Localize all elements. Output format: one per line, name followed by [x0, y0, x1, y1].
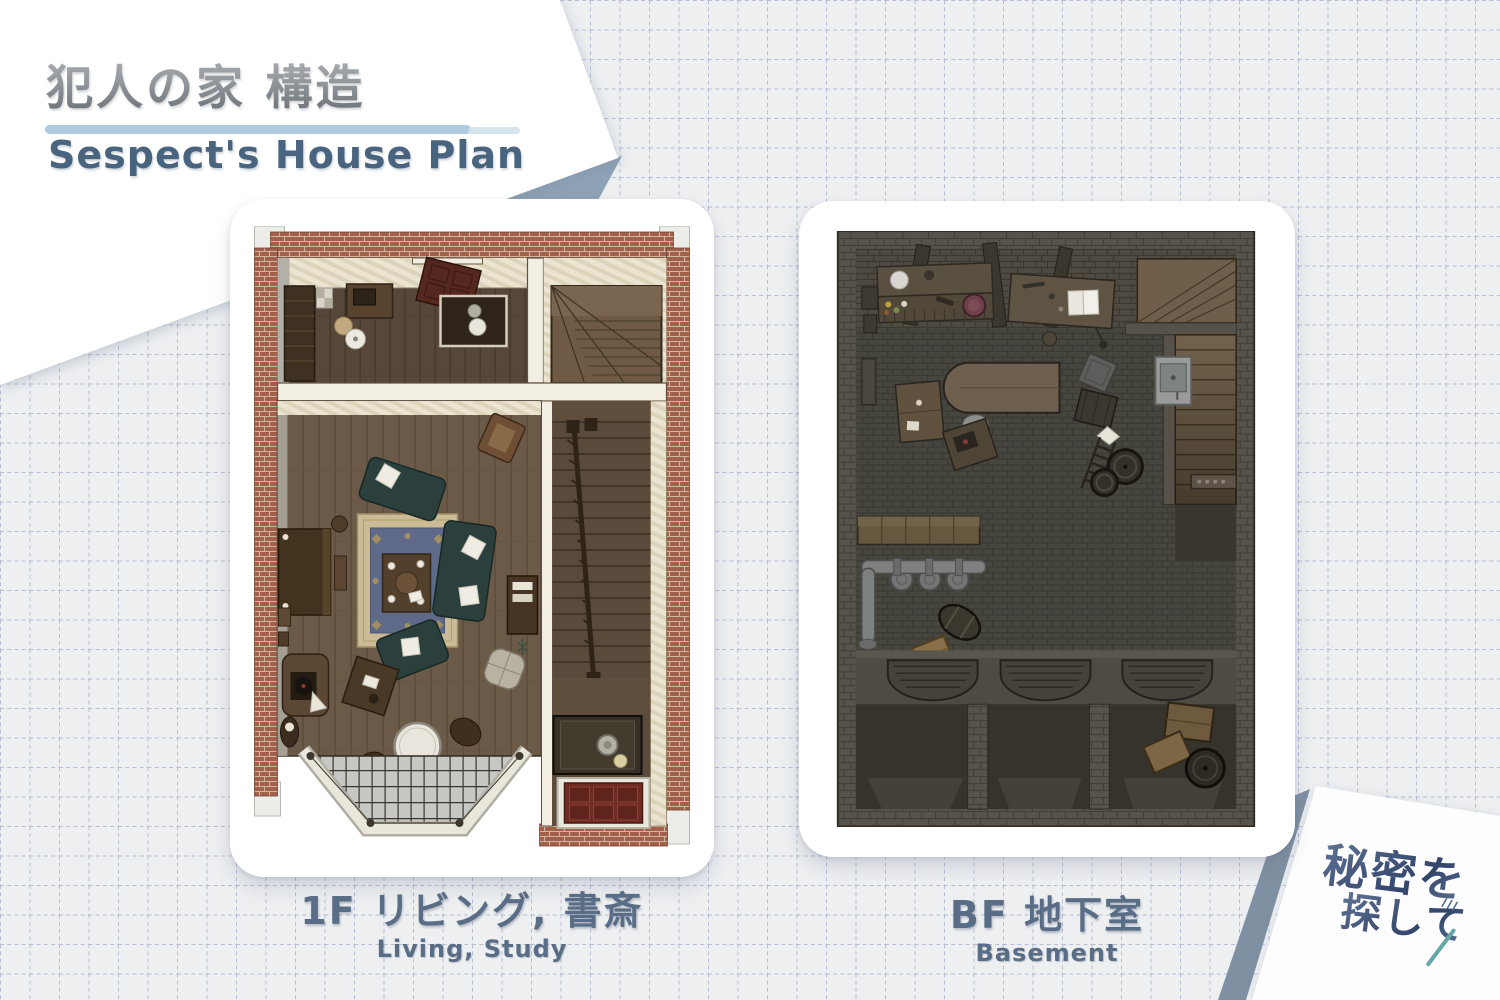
bookshelf — [285, 286, 315, 381]
gramophone-cabinet — [283, 654, 329, 716]
poster-page: { "page": { "background_color": "#edeff1… — [0, 0, 1500, 1000]
first-floor-sticker — [230, 199, 714, 877]
interior-wall-vertical — [528, 258, 544, 383]
basement-plan — [836, 231, 1256, 827]
safe — [554, 716, 642, 774]
first-floor-caption-japanese: 1F リビング, 書斎 — [230, 880, 714, 935]
basement-caption: BF 地下室 Basement — [799, 884, 1295, 967]
basement-desk — [1008, 273, 1115, 328]
drain-alcoves — [856, 650, 1236, 704]
front-door — [558, 778, 650, 828]
page-title-english: Sespect's House Plan — [48, 133, 525, 177]
basement-caption-english: Basement — [799, 939, 1295, 967]
lamp-center — [353, 337, 358, 342]
basement-caption-japanese: BF 地下室 — [799, 884, 1295, 939]
under-stair-void — [1175, 505, 1236, 561]
study-room — [278, 257, 528, 383]
wall-clock — [281, 717, 299, 747]
coffee-table — [383, 554, 431, 612]
checkered-cloth — [317, 288, 333, 308]
bay-window — [304, 750, 527, 829]
upper-stairwell — [544, 258, 667, 383]
interior-wall-horizontal — [278, 383, 667, 401]
right-shelf — [1191, 475, 1236, 489]
stair-corridor — [542, 401, 667, 828]
alchemy-workbench — [877, 263, 994, 323]
first-floor-caption: 1F リビング, 書斎 Living, Study — [230, 880, 714, 963]
dark-table — [441, 296, 507, 346]
wooden-crate-long — [858, 517, 980, 545]
writing-desk — [347, 284, 393, 318]
metal-sink — [1155, 357, 1191, 405]
basement-sticker — [799, 201, 1295, 857]
stair-landing — [553, 678, 651, 714]
first-floor-plan — [254, 226, 690, 850]
small-desk — [895, 381, 944, 443]
desk-stool — [1043, 332, 1057, 346]
page-title-japanese: 犯人の家 構造 — [46, 62, 365, 116]
first-floor-caption-english: Living, Study — [230, 935, 714, 963]
